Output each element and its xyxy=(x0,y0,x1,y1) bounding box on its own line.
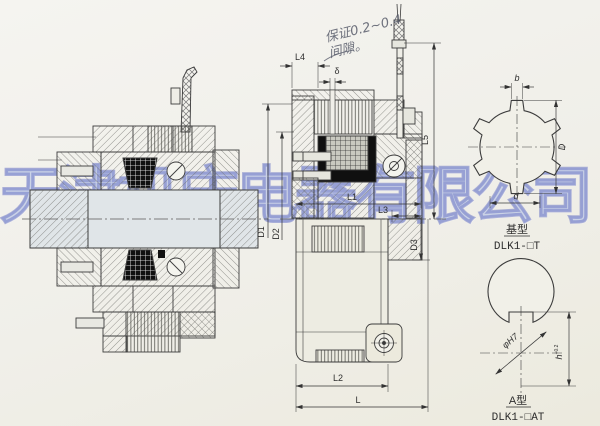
dim-label-D: D xyxy=(557,143,567,150)
dim-label-L1: L1 xyxy=(347,192,357,202)
dim-label-L5: L5 xyxy=(420,135,430,145)
spline-type-label: 基型 xyxy=(506,222,528,236)
dim-label-D3: D3 xyxy=(409,239,419,251)
dim-label-phiH7: φH7 xyxy=(500,331,521,350)
spline-profile-view xyxy=(468,83,566,208)
dim-label-b: b xyxy=(514,73,519,83)
terminal-screw xyxy=(366,324,402,362)
dim-label-delta: δ xyxy=(334,66,339,76)
dim-label-h: h+0.2 xyxy=(554,344,564,359)
dim-label-L3: L3 xyxy=(378,205,388,215)
spline-model-label: DLK1-□T xyxy=(494,241,541,253)
bore-profile-view xyxy=(480,259,576,394)
bore-model-label: DLK1-□AT xyxy=(492,412,545,424)
dim-label-L2: L2 xyxy=(333,373,343,383)
dim-label-D1: D1 xyxy=(256,226,266,238)
brush-arm xyxy=(181,67,197,132)
dim-label-L4: L4 xyxy=(295,52,305,62)
left-assembly-section-view xyxy=(22,67,268,352)
bore-type-label: A型 xyxy=(509,393,527,407)
dim-label-D2: D2 xyxy=(271,228,281,240)
technical-drawing: L4 δ L5 L1 L3 D1 D2 D3 L2 L b D xyxy=(0,0,600,426)
dim-label-L: L xyxy=(355,395,360,405)
